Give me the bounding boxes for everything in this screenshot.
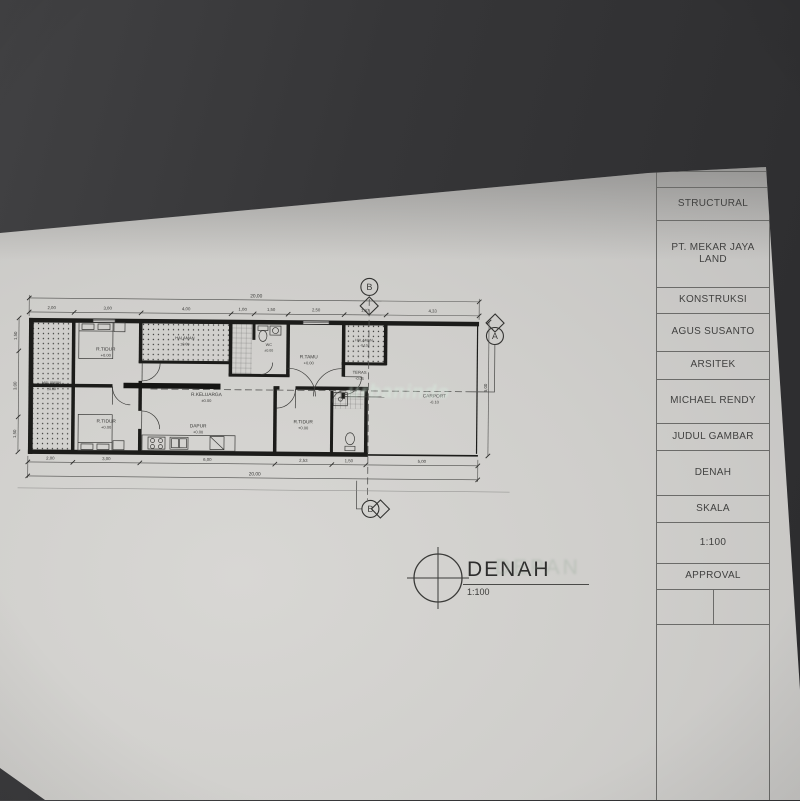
title-block-row-arsitek: ARSITEK bbox=[657, 352, 769, 380]
title-block-row-empty bbox=[657, 172, 769, 188]
section-marker-b-bottom: B bbox=[362, 500, 390, 518]
drawing-title-underline bbox=[463, 584, 589, 585]
svg-text:+0.00: +0.00 bbox=[298, 425, 309, 430]
dim-top-total: 20,00 bbox=[250, 293, 262, 299]
svg-text:-0.10: -0.10 bbox=[360, 343, 368, 347]
title-block-row-konstruksi-name: AGUS SUSANTO bbox=[657, 314, 769, 352]
svg-text:3,00: 3,00 bbox=[102, 456, 111, 461]
ghost-text: DEPAN bbox=[495, 556, 581, 580]
title-block-row-structural: STRUCTURAL bbox=[657, 188, 769, 221]
svg-text:HALAMAN: HALAMAN bbox=[355, 338, 373, 342]
room-label-tamu: R.TAMU +0.00 bbox=[300, 354, 319, 365]
svg-text:WC: WC bbox=[266, 343, 273, 347]
title-block-row-scale-value: 1:100 bbox=[657, 523, 769, 564]
svg-text:5,00: 5,00 bbox=[418, 459, 427, 464]
svg-text:+0.00: +0.00 bbox=[193, 429, 204, 434]
svg-text:TERAS: TERAS bbox=[353, 370, 367, 375]
dim-bottom-total: 20,00 bbox=[249, 471, 261, 477]
dim-right-total: 6,00 bbox=[483, 383, 488, 392]
svg-text:2,00: 2,00 bbox=[46, 456, 55, 461]
svg-text:4,33: 4,33 bbox=[428, 308, 437, 313]
paper-sheet: STRUCTURAL PT. MEKAR JAYA LAND KONSTRUKS… bbox=[0, 0, 800, 800]
title-block-row-konstruksi: KONSTRUKSI bbox=[657, 288, 769, 314]
title-block-row-denah: DENAH bbox=[657, 451, 769, 496]
svg-text:1,87: 1,87 bbox=[361, 308, 370, 313]
title-block-row-arsitek-name: MICHAEL RENDY bbox=[657, 380, 769, 424]
svg-text:1,50: 1,50 bbox=[12, 429, 17, 438]
watermark: urbanindo bbox=[348, 382, 450, 405]
svg-text:2,53: 2,53 bbox=[299, 458, 308, 463]
drawing-title-symbol-icon bbox=[405, 545, 471, 611]
svg-text:HALAMAN: HALAMAN bbox=[42, 380, 61, 385]
svg-text:1,50: 1,50 bbox=[13, 331, 18, 340]
svg-text:±0.00: ±0.00 bbox=[180, 342, 189, 346]
title-block-row-approval-cells bbox=[657, 590, 769, 625]
svg-text:+0.00: +0.00 bbox=[304, 360, 315, 365]
room-label-wc: WC ±0.00 bbox=[264, 343, 273, 353]
svg-text:4,00: 4,00 bbox=[182, 306, 191, 311]
photo-of-drawing: STRUCTURAL PT. MEKAR JAYA LAND KONSTRUKS… bbox=[0, 0, 800, 800]
svg-text:3,00: 3,00 bbox=[12, 381, 17, 390]
svg-text:3,00: 3,00 bbox=[103, 306, 112, 311]
svg-text:+0.00: +0.00 bbox=[101, 353, 112, 358]
svg-text:-0.05: -0.05 bbox=[355, 377, 364, 381]
title-block-row-judul: JUDUL GAMBAR bbox=[657, 424, 769, 451]
svg-text:6,00: 6,00 bbox=[203, 457, 212, 462]
title-block-row-blank bbox=[657, 625, 769, 795]
svg-text:1,50: 1,50 bbox=[267, 307, 276, 312]
room-label-tidur-kanan: R.TIDUR +0.00 bbox=[293, 419, 313, 430]
svg-text:1,50: 1,50 bbox=[345, 458, 354, 463]
room-label-tidur-bawah: R.TIDUR +0.00 bbox=[96, 419, 116, 430]
room-label-teras: TERAS -0.05 bbox=[353, 370, 367, 381]
svg-text:B: B bbox=[367, 504, 373, 514]
title-block-row-company: PT. MEKAR JAYA LAND bbox=[657, 221, 769, 288]
title-block: STRUCTURAL PT. MEKAR JAYA LAND KONSTRUKS… bbox=[656, 171, 770, 801]
svg-text:±0.00: ±0.00 bbox=[47, 387, 56, 391]
svg-text:±0.00: ±0.00 bbox=[264, 348, 273, 352]
svg-text:2,50: 2,50 bbox=[312, 307, 321, 312]
svg-text:HALAMAN: HALAMAN bbox=[175, 335, 194, 340]
room-label-keluarga: R.KELUARGA ±0.00 bbox=[191, 392, 223, 403]
svg-text:2,00: 2,00 bbox=[47, 305, 56, 310]
svg-text:A: A bbox=[492, 331, 498, 341]
title-block-row-approval: APPROVAL bbox=[657, 564, 769, 590]
title-block-row-skala: SKALA bbox=[657, 496, 769, 523]
svg-text:+0.00: +0.00 bbox=[101, 425, 112, 430]
svg-text:B: B bbox=[366, 282, 372, 292]
svg-text:1,00: 1,00 bbox=[238, 307, 247, 312]
drawing-title-scale: 1:100 bbox=[467, 587, 490, 597]
svg-text:±0.00: ±0.00 bbox=[201, 398, 212, 403]
room-label-dapur: DAPUR +0.00 bbox=[190, 423, 207, 434]
